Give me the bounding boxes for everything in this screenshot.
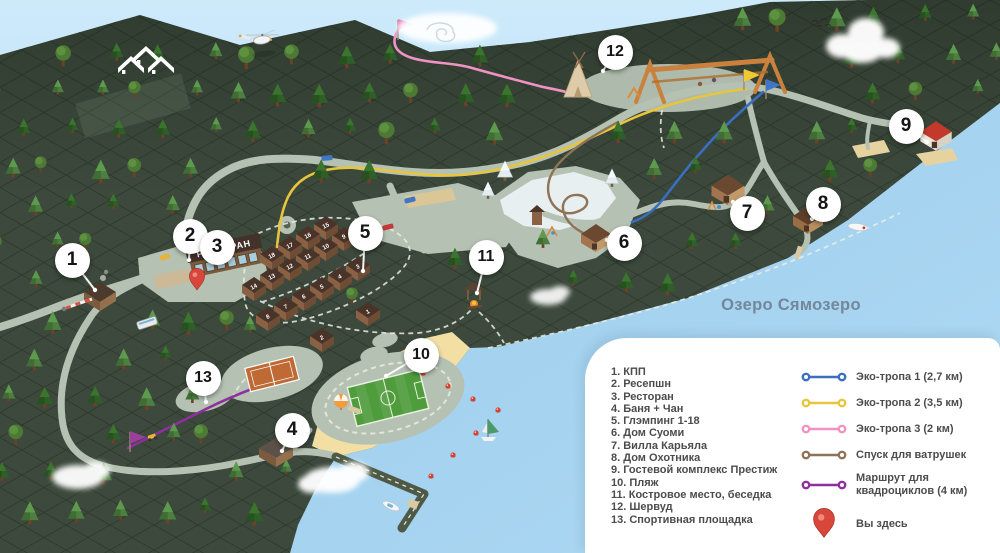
map-marker-12[interactable]: 12 (598, 35, 633, 70)
route-line-icon (801, 449, 847, 461)
route-line-icon (801, 479, 847, 491)
map-marker-1[interactable]: 1 (55, 243, 90, 278)
lake-label: Озеро Сямозеро (721, 296, 861, 314)
legend-route-eco-trail-3: Эко-тропа 3 (2 км) (801, 416, 997, 442)
resort-map-screen: РЕСТОРАН (0, 0, 1000, 553)
legend-route-list: Эко-тропа 1 (2,7 км) Эко-тропа 2 (3,5 км… (801, 364, 997, 546)
swirl-cloud-icon (397, 13, 497, 43)
map-marker-13[interactable]: 13 (186, 361, 221, 396)
legend-route-quad: Маршрут для квадроциклов (4 км) (801, 468, 997, 502)
legend-route-eco-trail-1: Эко-тропа 1 (2,7 км) (801, 364, 997, 390)
legend-route-tubing: Спуск для ватрушек (801, 442, 997, 468)
route-line-icon (801, 423, 847, 435)
map-marker-8[interactable]: 8 (806, 187, 841, 222)
map-marker-10[interactable]: 10 (404, 338, 439, 373)
you-are-here-pin-icon (811, 507, 837, 541)
route-line-icon (801, 371, 847, 383)
map-marker-9[interactable]: 9 (889, 109, 924, 144)
map-marker-4[interactable]: 4 (275, 413, 310, 448)
map-marker-5[interactable]: 5 (348, 216, 383, 251)
map-marker-11[interactable]: 11 (469, 240, 504, 275)
map-marker-7[interactable]: 7 (730, 196, 765, 231)
route-line-icon (801, 397, 847, 409)
legend-route-eco-trail-2: Эко-тропа 2 (3,5 км) (801, 390, 997, 416)
map-marker-3[interactable]: 3 (200, 230, 235, 265)
map-marker-6[interactable]: 6 (607, 226, 642, 261)
legend-panel: 1. КПП 2. Ресепшн 3. Ресторан 4. Баня + … (585, 338, 1000, 553)
legend-you-are-here: Вы здесь (801, 502, 997, 546)
